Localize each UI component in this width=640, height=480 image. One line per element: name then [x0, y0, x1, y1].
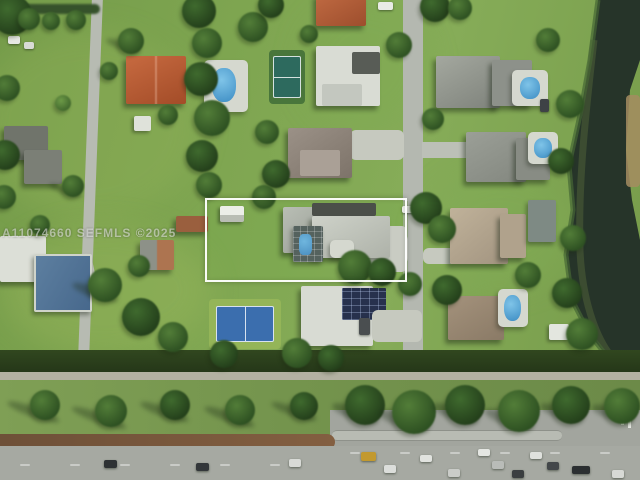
tree [0, 75, 20, 101]
tree [0, 140, 20, 170]
tree [282, 338, 312, 368]
tree [300, 25, 318, 43]
tree [192, 28, 222, 58]
tree [556, 90, 584, 118]
tree [318, 345, 344, 371]
tree [548, 148, 574, 174]
tree [386, 32, 412, 58]
tree [95, 395, 127, 427]
tree [255, 120, 279, 144]
tree [432, 275, 462, 305]
tree [194, 100, 230, 136]
tree [0, 185, 16, 209]
tree [18, 8, 40, 30]
tree [158, 105, 178, 125]
tree [128, 255, 150, 277]
tree [392, 390, 436, 434]
tree [210, 340, 238, 368]
tree [196, 172, 222, 198]
tree [604, 388, 640, 424]
tree [160, 390, 190, 420]
tree [560, 225, 586, 251]
tree [186, 140, 218, 172]
tree [62, 175, 84, 197]
tree [448, 0, 472, 20]
tree [262, 160, 290, 188]
tree [552, 278, 582, 308]
tree [290, 392, 318, 420]
tree [345, 385, 385, 425]
tree [225, 395, 255, 425]
tree [428, 215, 456, 243]
tree [88, 268, 122, 302]
tree [100, 62, 118, 80]
tree [158, 322, 188, 352]
tree [182, 0, 216, 28]
mls-watermark: A11074660 SEFMLS ©2025 [2, 226, 176, 240]
tree [42, 12, 60, 30]
tree [515, 262, 541, 288]
tree [55, 95, 71, 111]
tree [552, 386, 590, 424]
tree [566, 318, 598, 350]
property-boundary-highlight [205, 198, 407, 282]
tree [118, 28, 144, 54]
tree [30, 390, 60, 420]
tree [445, 385, 485, 425]
tree [184, 62, 218, 96]
tree [420, 0, 450, 22]
tree [122, 298, 160, 336]
tree [238, 12, 268, 42]
tree [498, 390, 540, 432]
aerial-photo: A11074660 SEFMLS ©2025 [0, 0, 640, 480]
tree [422, 108, 444, 130]
tree [66, 10, 86, 30]
tree [536, 28, 560, 52]
